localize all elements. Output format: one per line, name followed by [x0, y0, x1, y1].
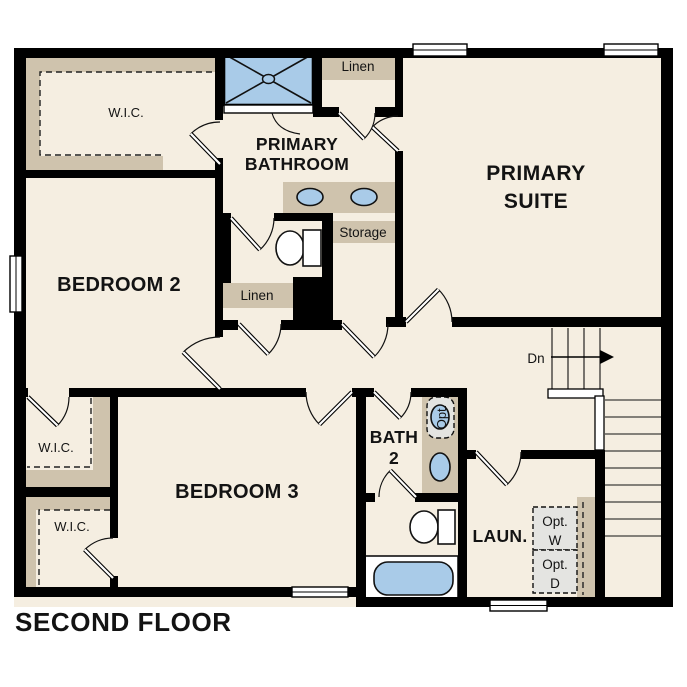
wall-segment: [218, 213, 231, 283]
wall-segment: [14, 48, 673, 58]
label-primary-suite-1: PRIMARY: [486, 162, 586, 185]
cabinetry: [577, 497, 595, 597]
floor-plan-canvas: W.I.C. Linen PRIMARY BATHROOM PRIMARY SU…: [0, 0, 687, 687]
window: [292, 587, 348, 597]
wall-segment: [69, 388, 306, 397]
shower: [224, 53, 313, 113]
window: [413, 44, 467, 56]
label-optional-sink: Opt.: [434, 405, 449, 430]
wall-segment: [14, 48, 26, 597]
wall-segment: [110, 388, 118, 487]
stair-railing-vertical: [595, 396, 604, 450]
cabinetry: [40, 156, 163, 170]
primary-toilet: [276, 230, 321, 266]
label-wic-primary: W.I.C.: [108, 105, 143, 120]
wall-segment: [322, 213, 333, 283]
cabinetry: [26, 510, 36, 587]
wall-segment: [661, 48, 673, 607]
label-optional-washer-1: Opt.: [542, 514, 568, 529]
label-storage: Storage: [339, 225, 386, 240]
floor-plan-page: W.I.C. Linen PRIMARY BATHROOM PRIMARY SU…: [0, 0, 687, 687]
wall-segment: [313, 48, 322, 117]
wall-segment: [14, 170, 223, 178]
label-optional-dryer-1: Opt.: [542, 557, 568, 572]
wall-segment: [14, 487, 118, 497]
bath2-sink: [430, 453, 450, 481]
cabinetry: [26, 58, 215, 72]
wall-segment: [452, 317, 661, 327]
label-primary-bathroom-1: PRIMARY: [256, 134, 338, 154]
label-bedroom2: BEDROOM 2: [57, 274, 181, 296]
label-primary-suite-2: SUITE: [504, 190, 568, 213]
wall-segment: [313, 107, 339, 117]
wall-segment: [293, 277, 333, 324]
wall-segment: [415, 493, 467, 502]
label-bath2-2: 2: [389, 448, 399, 468]
label-primary-bathroom-2: BATHROOM: [245, 154, 349, 174]
bath2-toilet: [410, 510, 455, 544]
label-linen-upper: Linen: [341, 59, 374, 74]
label-wic-bedroom2: W.I.C.: [38, 440, 73, 455]
wall-segment: [110, 497, 118, 538]
bathtub: [365, 556, 458, 602]
wall-segment: [215, 58, 223, 120]
cabinetry: [26, 497, 110, 510]
wall-segment: [521, 450, 604, 459]
label-bath2-1: BATH: [370, 427, 419, 447]
window: [10, 256, 22, 312]
label-optional-washer-2: W: [549, 533, 562, 548]
wall-segment: [467, 450, 476, 459]
label-bedroom3: BEDROOM 3: [175, 481, 299, 503]
wall-segment: [366, 493, 375, 502]
wall-segment: [386, 317, 406, 327]
wall-segment: [218, 320, 238, 330]
wall-segment: [356, 388, 366, 597]
wall-segment: [14, 388, 28, 397]
cabinetry: [26, 470, 110, 487]
wall-segment: [395, 48, 403, 116]
wall-segment: [395, 151, 403, 327]
label-laundry: LAUN.: [473, 526, 528, 546]
label-linen-hall: Linen: [240, 288, 273, 303]
cabinetry: [93, 397, 110, 470]
shower-curb: [224, 105, 313, 113]
window: [604, 44, 658, 56]
label-wic-bedroom3: W.I.C.: [54, 519, 89, 534]
plan-title: SECOND FLOOR: [15, 607, 232, 637]
window: [490, 600, 547, 611]
cabinetry: [26, 72, 40, 170]
wall-segment: [595, 450, 605, 607]
label-optional-dryer-2: D: [550, 576, 560, 591]
label-stairs-down: Dn: [527, 351, 544, 366]
